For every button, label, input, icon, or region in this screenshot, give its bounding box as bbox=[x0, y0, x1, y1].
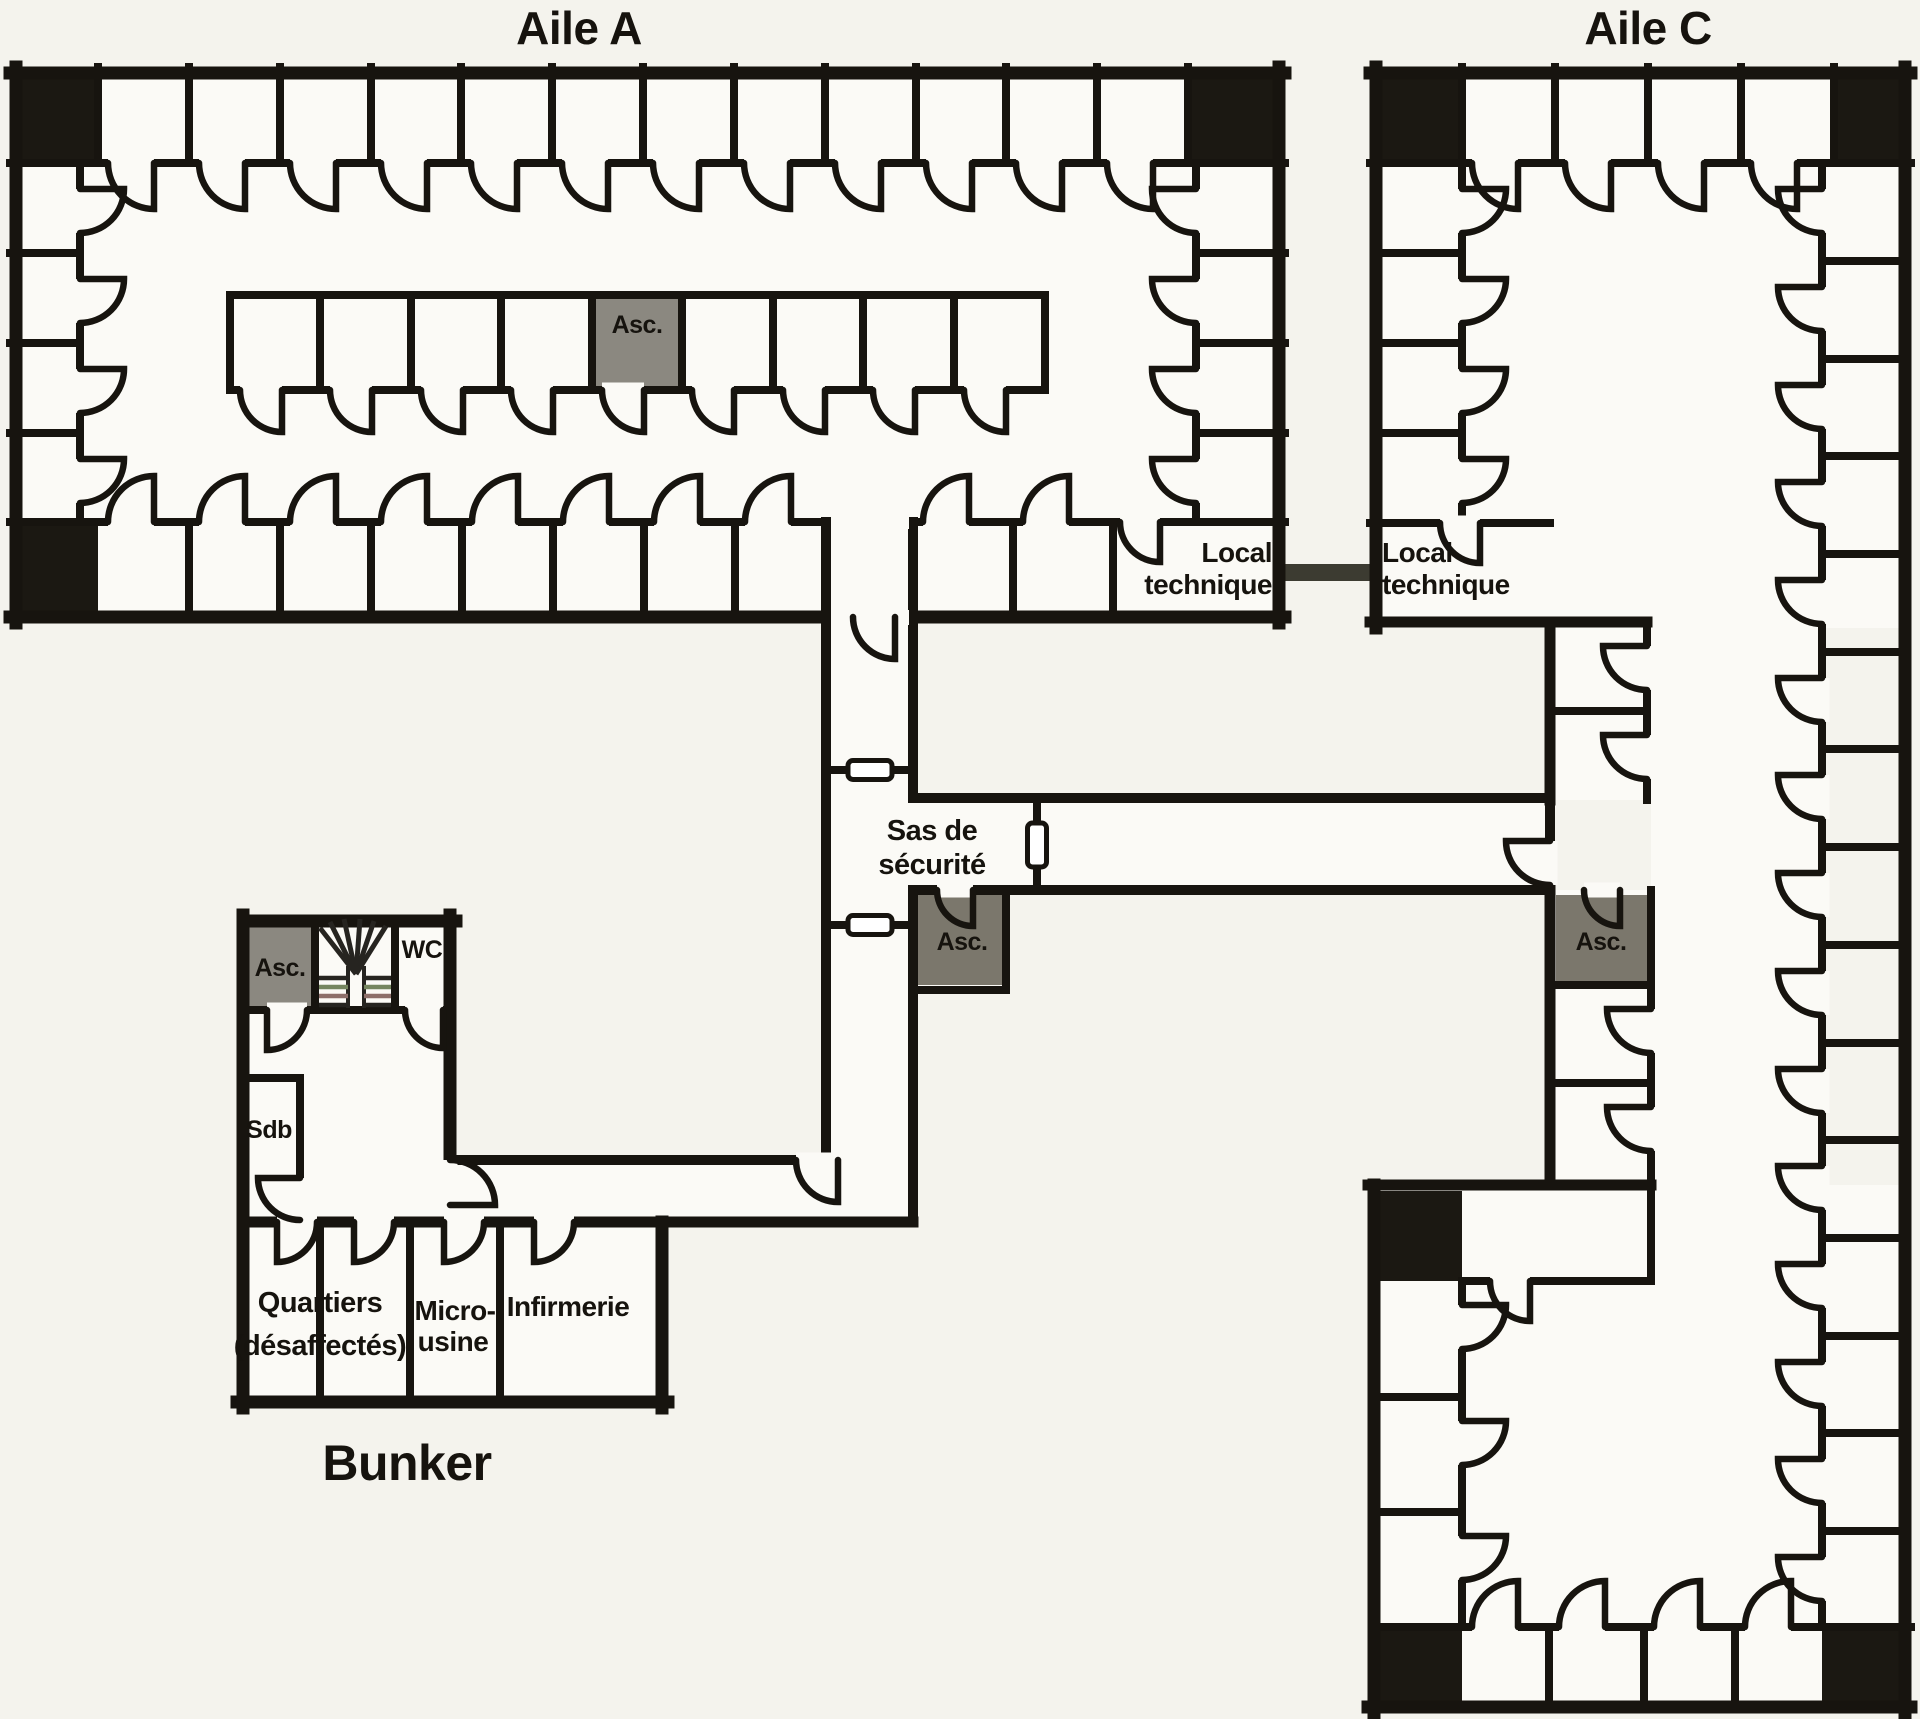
wall-opening bbox=[831, 515, 909, 529]
door-opening bbox=[73, 459, 88, 503]
door-opening bbox=[1455, 1305, 1470, 1349]
door-opening bbox=[853, 610, 895, 625]
door-opening bbox=[1584, 883, 1620, 898]
door-opening bbox=[1654, 1620, 1700, 1635]
door-opening bbox=[1815, 678, 1830, 722]
label-local-technique-c-line2: technique bbox=[1382, 569, 1510, 600]
door-opening bbox=[1490, 1274, 1530, 1289]
door-opening bbox=[1455, 459, 1470, 503]
door-opening bbox=[1815, 1264, 1830, 1308]
label-asc-bunker-elevator: Asc. bbox=[255, 954, 306, 982]
door-opening bbox=[199, 156, 245, 171]
label-sas-securite-line2: sécurité bbox=[878, 849, 986, 881]
door-opening bbox=[1543, 841, 1558, 885]
door-opening bbox=[73, 369, 88, 413]
label-micro-usine-line1: Micro- bbox=[415, 1295, 496, 1326]
door-opening bbox=[1815, 287, 1830, 331]
door-opening bbox=[796, 1153, 838, 1168]
corner-block bbox=[1822, 1627, 1905, 1707]
floor-plan-page: Aile A Aile C Bunker Asc. Asc. Asc. Asc.… bbox=[0, 0, 1920, 1719]
door-opening bbox=[744, 156, 790, 171]
door-opening bbox=[937, 883, 973, 898]
label-local-technique-c-line1: Local bbox=[1382, 537, 1453, 568]
door-opening bbox=[1815, 189, 1830, 233]
label-quartiers-line1: Quartiers bbox=[258, 1287, 382, 1319]
door-opening bbox=[1815, 873, 1830, 917]
label-local-technique-a-line1: Local bbox=[1201, 537, 1272, 568]
door-opening bbox=[1745, 1620, 1791, 1635]
door-opening bbox=[1023, 515, 1069, 530]
door-opening bbox=[1640, 735, 1655, 779]
door-opening bbox=[1658, 156, 1704, 171]
corner-block bbox=[1834, 67, 1905, 163]
door-opening bbox=[1455, 189, 1470, 233]
door-opening bbox=[354, 1215, 394, 1230]
door-opening bbox=[923, 515, 969, 530]
door-opening bbox=[381, 156, 427, 171]
label-micro-usine-line2: usine bbox=[418, 1326, 489, 1357]
door-opening bbox=[964, 383, 1006, 398]
corner-block bbox=[1376, 67, 1462, 163]
door-opening bbox=[1815, 971, 1830, 1015]
door-opening bbox=[602, 383, 644, 398]
door-opening bbox=[1120, 515, 1160, 530]
label-local-technique-a-line2: technique bbox=[1144, 569, 1272, 600]
door-opening bbox=[1815, 1166, 1830, 1210]
door-opening bbox=[1107, 156, 1153, 171]
door-opening bbox=[381, 515, 427, 530]
label-aile-c: Aile C bbox=[1584, 2, 1711, 54]
corner-block bbox=[1188, 67, 1285, 163]
corner-block bbox=[10, 67, 98, 163]
door-opening bbox=[563, 515, 609, 530]
corner-block bbox=[10, 521, 98, 617]
label-asc-island-elevator: Asc. bbox=[612, 311, 663, 339]
door-opening bbox=[511, 383, 553, 398]
door-opening bbox=[1559, 1620, 1605, 1635]
door-opening bbox=[1189, 189, 1204, 233]
floor-plan-svg: Aile A Aile C Bunker Asc. Asc. Asc. Asc.… bbox=[0, 0, 1920, 1719]
door-opening bbox=[926, 156, 972, 171]
door-opening bbox=[472, 515, 518, 530]
door-opening bbox=[1565, 156, 1611, 171]
door-opening bbox=[1455, 1536, 1470, 1580]
door-opening bbox=[1815, 1459, 1830, 1503]
door-opening bbox=[73, 279, 88, 323]
door-opening bbox=[443, 1160, 458, 1205]
door-opening bbox=[1189, 369, 1204, 413]
door-opening bbox=[108, 515, 154, 530]
door-opening bbox=[290, 156, 336, 171]
wing-footprint bbox=[450, 1160, 913, 1222]
door-opening bbox=[1815, 775, 1830, 819]
door-opening bbox=[1815, 1557, 1830, 1601]
label-aile-a: Aile A bbox=[516, 2, 642, 54]
double-door bbox=[848, 761, 892, 780]
wing-footprint bbox=[913, 798, 1550, 890]
door-opening bbox=[405, 1003, 443, 1018]
door-opening bbox=[1640, 646, 1655, 690]
door-opening bbox=[108, 156, 154, 171]
door-opening bbox=[783, 383, 825, 398]
door-opening bbox=[293, 1178, 308, 1220]
tunnel-link bbox=[1285, 564, 1376, 581]
door-opening bbox=[1189, 279, 1204, 323]
door-opening bbox=[534, 1215, 574, 1230]
label-sdb: Sdb bbox=[246, 1116, 292, 1144]
door-opening bbox=[653, 156, 699, 171]
label-bunker: Bunker bbox=[322, 1435, 491, 1491]
door-opening bbox=[1751, 156, 1797, 171]
door-opening bbox=[1440, 516, 1480, 531]
door-opening bbox=[73, 189, 88, 233]
door-opening bbox=[654, 515, 700, 530]
door-opening bbox=[562, 156, 608, 171]
door-opening bbox=[1815, 580, 1830, 624]
double-door bbox=[1028, 823, 1047, 867]
door-opening bbox=[330, 383, 372, 398]
door-opening bbox=[1472, 1620, 1518, 1635]
door-opening bbox=[1815, 482, 1830, 526]
door-opening bbox=[745, 515, 791, 530]
door-opening bbox=[267, 1003, 307, 1018]
door-opening bbox=[1455, 1421, 1470, 1465]
label-sas-securite-line1: Sas de bbox=[887, 815, 978, 847]
door-opening bbox=[199, 515, 245, 530]
door-opening bbox=[1644, 1107, 1659, 1151]
double-door bbox=[848, 916, 892, 935]
label-asc-sas-elevator: Asc. bbox=[937, 928, 988, 956]
door-opening bbox=[240, 383, 282, 398]
door-opening bbox=[1189, 459, 1204, 503]
door-opening bbox=[692, 383, 734, 398]
door-opening bbox=[471, 156, 517, 171]
door-opening bbox=[1815, 385, 1830, 429]
label-quartiers-line2: (désaffectés) bbox=[234, 1330, 406, 1362]
tunnel-layer bbox=[1285, 564, 1376, 581]
door-opening bbox=[1815, 1362, 1830, 1406]
door-opening bbox=[421, 383, 463, 398]
corner-block bbox=[1374, 1191, 1462, 1281]
label-infirmerie: Infirmerie bbox=[507, 1291, 630, 1322]
door-opening bbox=[1016, 156, 1062, 171]
label-wc: WC bbox=[402, 936, 443, 964]
door-opening bbox=[1472, 156, 1518, 171]
label-asc-aile-c-elevator: Asc. bbox=[1576, 928, 1627, 956]
door-opening bbox=[835, 156, 881, 171]
door-opening bbox=[1644, 1009, 1659, 1053]
door-opening bbox=[873, 383, 915, 398]
corner-block bbox=[1374, 1627, 1462, 1707]
door-opening bbox=[290, 515, 336, 530]
door-opening bbox=[1455, 369, 1470, 413]
door-opening bbox=[444, 1215, 484, 1230]
door-opening bbox=[1815, 1069, 1830, 1113]
door-opening bbox=[1455, 279, 1470, 323]
